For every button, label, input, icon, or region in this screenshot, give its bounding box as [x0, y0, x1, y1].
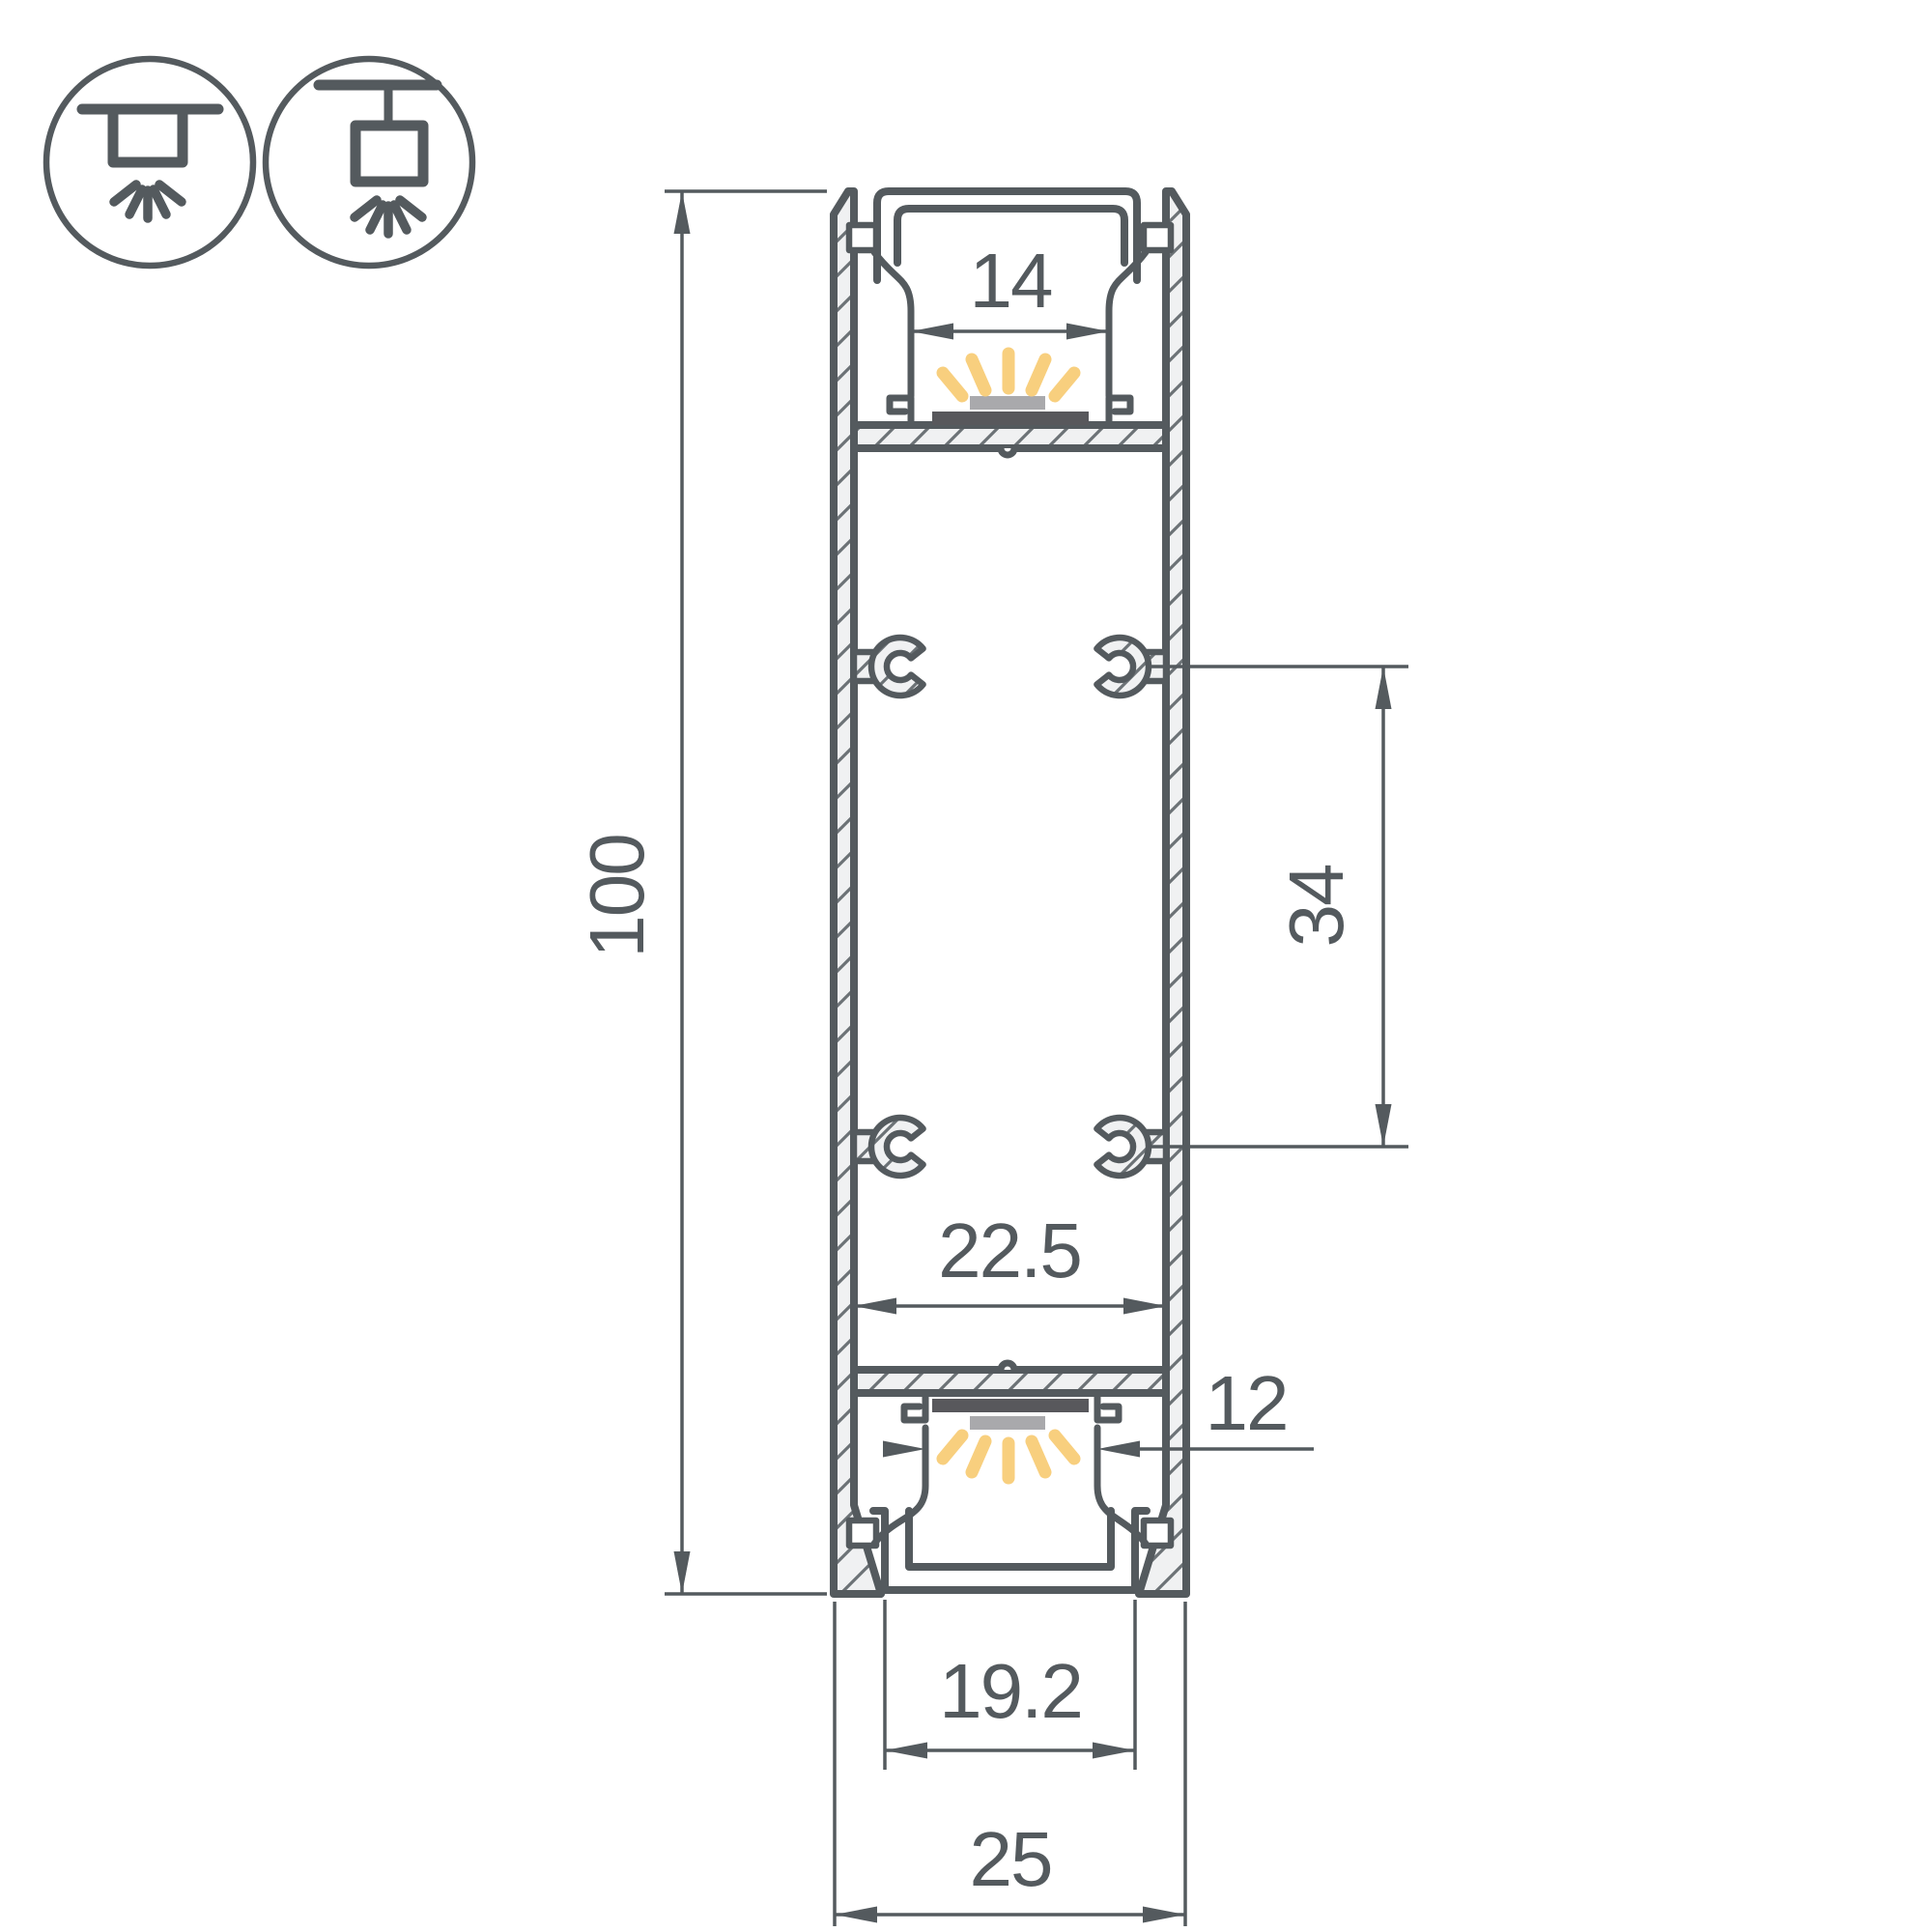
screw-boss [871, 1118, 923, 1176]
dim-overall-height: 100 [574, 191, 827, 1594]
led-strip [932, 412, 1089, 425]
strip-clamp [904, 1395, 925, 1420]
led-rays [943, 1435, 1074, 1478]
dim-label-cover-width: 19.2 [939, 1648, 1082, 1734]
dim-label-boss-spacing: 34 [1273, 865, 1359, 947]
light-rays [355, 200, 422, 234]
led-rays [943, 354, 1074, 396]
bottom-cover-inner [909, 1511, 1111, 1567]
led-emitter [970, 396, 1045, 410]
dim-label-bottom-opening: 12 [1206, 1360, 1288, 1446]
led-emitter [970, 1416, 1045, 1430]
strip-clamp [890, 398, 911, 423]
bottom-cover [873, 1511, 1147, 1590]
top-channel-floor [854, 425, 1166, 448]
fixture-box [113, 109, 183, 162]
profile-cross-section [834, 191, 1186, 1594]
clip-notch [849, 225, 876, 250]
screw-pilot-top [1001, 448, 1014, 455]
light-rays [114, 185, 182, 218]
top-led [932, 354, 1089, 425]
bottom-led [932, 1399, 1089, 1478]
surface-mount-icon [46, 59, 253, 266]
strip-clamp [1109, 398, 1130, 423]
led-strip [932, 1399, 1089, 1412]
drawing-canvas: 100 14 34 22.5 [0, 0, 1932, 1932]
strip-clamp [1097, 1395, 1119, 1420]
screw-bosses [854, 638, 1166, 1176]
screw-boss [1096, 1118, 1149, 1176]
screw-boss [1096, 638, 1149, 696]
middle-divider [854, 1370, 1166, 1393]
fixture-box [355, 126, 423, 182]
technical-drawing: 100 14 34 22.5 [0, 0, 1932, 1932]
screw-boss [871, 638, 923, 696]
dim-label-overall-width: 25 [970, 1816, 1052, 1902]
clip-notch [1144, 225, 1171, 250]
dim-cover-width: 19.2 [885, 1600, 1135, 1770]
screw-pilot-bottom [1001, 1363, 1014, 1370]
mount-icons [46, 59, 472, 266]
suspended-mount-icon [266, 59, 472, 266]
dim-inner-width: 22.5 [854, 1207, 1166, 1315]
dim-label-top-opening: 14 [970, 238, 1052, 324]
dim-label-inner-width: 22.5 [938, 1207, 1081, 1293]
dim-label-overall-height: 100 [574, 835, 660, 957]
